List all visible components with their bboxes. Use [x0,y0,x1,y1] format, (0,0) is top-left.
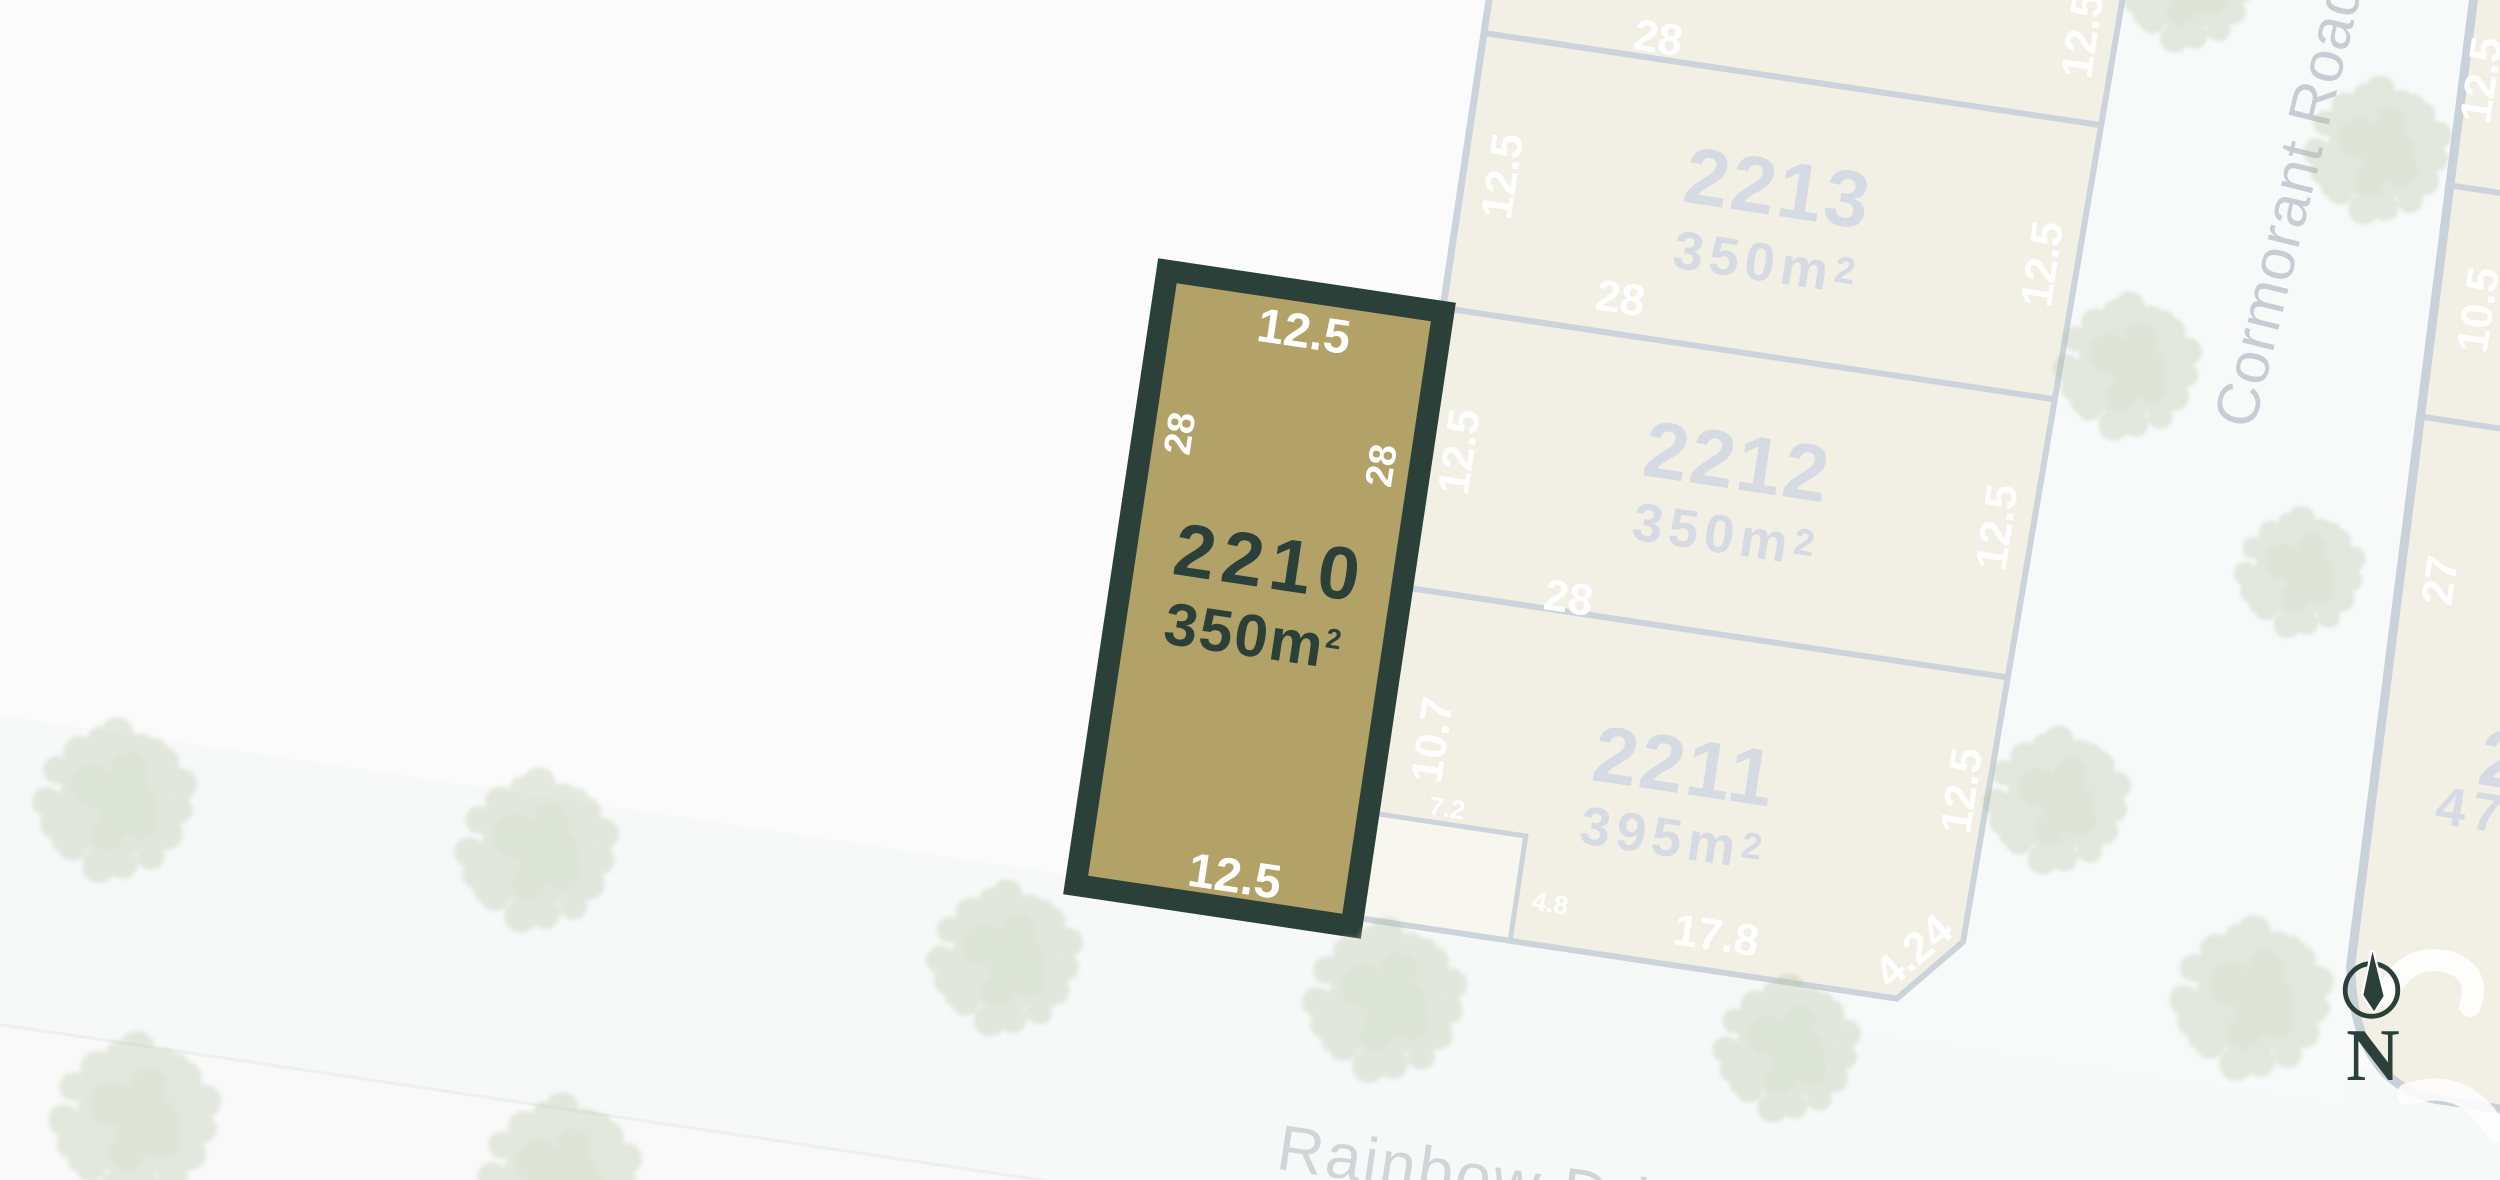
svg-text:7.2: 7.2 [1427,791,1467,826]
svg-text:28: 28 [1157,410,1205,458]
svg-text:28: 28 [1358,442,1406,490]
svg-text:28: 28 [1592,271,1648,327]
svg-text:28: 28 [1630,10,1686,66]
svg-text:28: 28 [1541,570,1597,626]
svg-text:4.8: 4.8 [1530,886,1570,921]
svg-text:N: N [2346,1015,2399,1097]
svg-text:27: 27 [2412,552,2468,608]
